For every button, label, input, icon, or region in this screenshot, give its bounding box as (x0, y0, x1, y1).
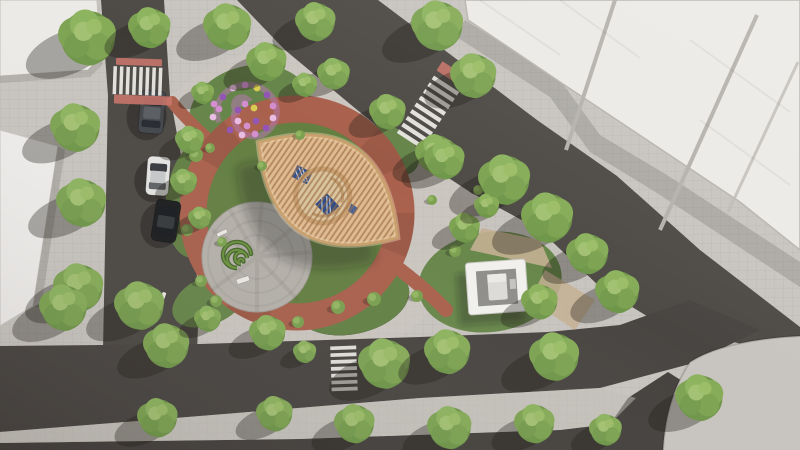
scene-canvas (0, 0, 800, 450)
lighting-overlay (0, 0, 800, 450)
park-aerial-render (0, 0, 800, 450)
